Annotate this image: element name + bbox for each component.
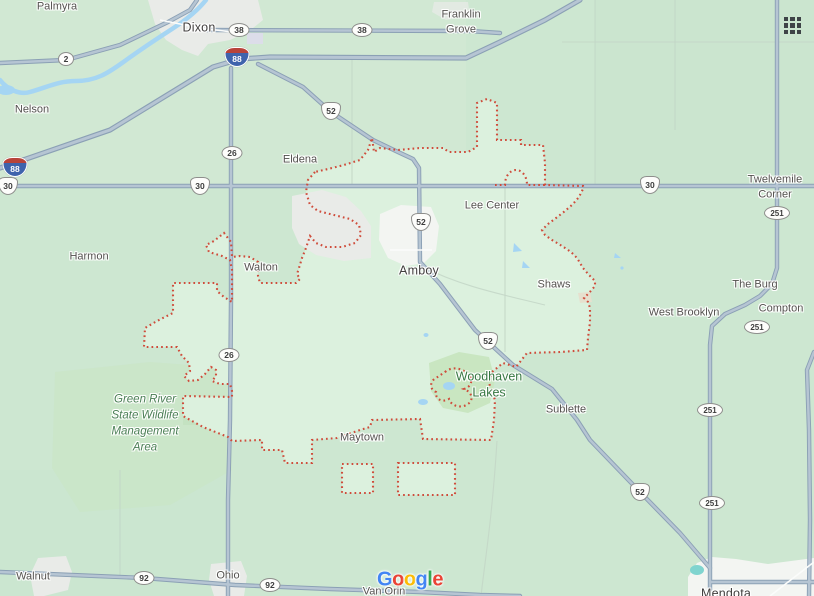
map-label-dixon[interactable]: Dixon	[183, 19, 216, 37]
route-number: 251	[750, 323, 763, 332]
map-label-ohio[interactable]: Ohio	[216, 568, 239, 583]
quarry-patch	[578, 292, 592, 303]
route-number: 2	[64, 54, 69, 64]
map-label-walton[interactable]: Walton	[244, 260, 278, 275]
amboy-urban-area	[379, 205, 439, 266]
map-label-eldena[interactable]: Eldena	[283, 152, 317, 167]
route-number: 88	[232, 54, 241, 64]
map-label-sublette[interactable]: Sublette	[546, 402, 586, 417]
woodhaven-pond	[424, 333, 429, 337]
route-number: 52	[635, 487, 644, 497]
route-shield-state-92: 92	[134, 571, 155, 585]
map-geometry	[0, 0, 814, 596]
route-shield-state-92: 92	[260, 578, 281, 592]
map-label-green-river-swma[interactable]: Green River State Wildlife Management Ar…	[111, 392, 178, 455]
map-label-compton[interactable]: Compton	[759, 301, 804, 316]
route-number: 38	[234, 25, 243, 35]
route-shield-state-251: 251	[744, 320, 770, 334]
map-label-amboy[interactable]: Amboy	[399, 262, 439, 280]
map-label-mendota[interactable]: Mendota	[701, 585, 751, 596]
route-shield-state-251: 251	[697, 403, 723, 417]
grid-square	[790, 30, 794, 34]
google-logo-letter: G	[377, 569, 392, 591]
route-number: 26	[224, 350, 233, 360]
apps-grid-icon[interactable]	[784, 17, 801, 34]
google-logo[interactable]: Google	[377, 569, 443, 592]
map-label-walnut[interactable]: Walnut	[16, 569, 50, 584]
grid-square	[784, 17, 788, 21]
woodhaven-lake	[443, 382, 455, 390]
grid-square	[790, 23, 794, 27]
woodhaven-lake	[418, 399, 428, 405]
route-number: 251	[705, 499, 718, 508]
route-shield-state-26: 26	[219, 348, 240, 362]
route-shield-state-38: 38	[352, 23, 373, 37]
route-number: 251	[770, 209, 783, 218]
route-number: 38	[357, 25, 366, 35]
route-number: 52	[483, 336, 492, 346]
route-number: 30	[3, 181, 12, 191]
route-number: 26	[227, 148, 236, 158]
google-logo-letter: o	[392, 569, 404, 591]
map-label-maytown[interactable]: Maytown	[340, 430, 384, 445]
map-label-the-burg[interactable]: The Burg	[732, 277, 777, 292]
map-label-lee-center[interactable]: Lee Center	[465, 198, 519, 213]
route-shield-state-251: 251	[764, 206, 790, 220]
map-canvas[interactable]: 2383888883030302626525252522512512512519…	[0, 0, 814, 596]
map-label-palmyra[interactable]: Palmyra	[37, 0, 77, 15]
map-label-nelson[interactable]: Nelson	[15, 102, 49, 117]
map-label-west-brooklyn[interactable]: West Brooklyn	[649, 305, 720, 320]
small-pond	[620, 266, 623, 269]
route-number: 52	[326, 106, 335, 116]
grid-square	[797, 30, 801, 34]
grid-square	[784, 23, 788, 27]
route-number: 30	[195, 181, 204, 191]
grid-square	[797, 23, 801, 27]
route-number: 30	[645, 180, 654, 190]
grid-square	[797, 17, 801, 21]
mendota-pond	[690, 565, 704, 575]
route-number: 92	[139, 573, 148, 583]
map-label-franklin-grove[interactable]: Franklin Grove	[441, 8, 480, 39]
google-logo-letter: e	[432, 569, 443, 591]
grid-square	[790, 17, 794, 21]
region-exclave-fill-2	[398, 463, 455, 495]
route-shield-state-26: 26	[222, 146, 243, 160]
region-exclave-fill-1	[342, 464, 373, 493]
map-label-shaws[interactable]: Shaws	[537, 277, 570, 292]
route-shield-state-2: 2	[58, 52, 74, 66]
route-number: 251	[703, 406, 716, 415]
route-shield-state-38: 38	[229, 23, 250, 37]
google-logo-letter: g	[416, 569, 428, 591]
route-shield-state-251: 251	[699, 496, 725, 510]
route-number: 92	[265, 580, 274, 590]
map-label-woodhaven-lakes[interactable]: Woodhaven Lakes	[456, 369, 523, 400]
route-number: 52	[416, 217, 425, 227]
google-logo-letter: o	[404, 569, 416, 591]
grid-square	[784, 30, 788, 34]
map-label-harmon[interactable]: Harmon	[69, 249, 108, 264]
dixon-building-block	[247, 33, 263, 44]
map-label-twelvemile-corner[interactable]: Twelvemile Corner	[748, 173, 802, 204]
route-number: 88	[10, 164, 19, 174]
township-tint-ne	[595, 0, 814, 186]
